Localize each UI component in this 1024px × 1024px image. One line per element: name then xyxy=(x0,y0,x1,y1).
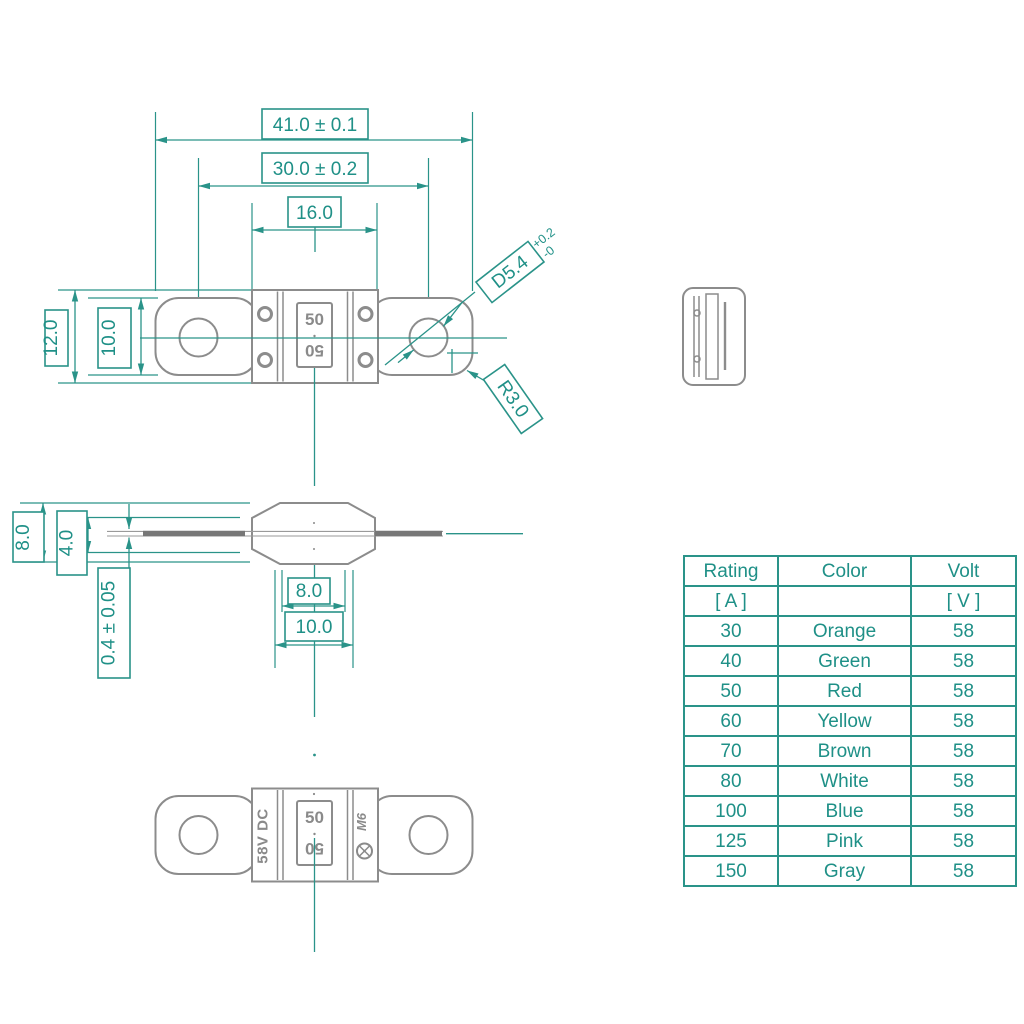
cell-volt: 58 xyxy=(911,646,1016,676)
cell-volt: 58 xyxy=(911,706,1016,736)
table-header-row: Rating Color Volt xyxy=(684,556,1016,586)
profile-dot-top xyxy=(313,522,315,524)
header-rating: Rating xyxy=(684,556,778,586)
voltage-marking: 58V DC xyxy=(255,808,272,864)
table-row: 150 Gray 58 xyxy=(684,856,1016,886)
unit-volt: [ V ] xyxy=(911,586,1016,616)
unit-rating: [ A ] xyxy=(684,586,778,616)
table-units-row: [ A ] [ V ] xyxy=(684,586,1016,616)
base-outer-width-value: 10.0 xyxy=(296,617,333,638)
cell-color: Gray xyxy=(778,856,911,886)
cell-color: Green xyxy=(778,646,911,676)
cell-rating: 40 xyxy=(684,646,778,676)
table-row: 40 Green 58 xyxy=(684,646,1016,676)
table-row: 70 Brown 58 xyxy=(684,736,1016,766)
side-height-value: 8.0 xyxy=(13,524,34,550)
top-edge-dot xyxy=(313,793,315,795)
rating-label-inverted: 50 xyxy=(305,341,324,360)
slot-height-value: 4.0 xyxy=(57,530,78,556)
center-dot xyxy=(313,335,315,337)
cell-rating: 100 xyxy=(684,796,778,826)
side-profile-body xyxy=(252,503,375,564)
cell-rating: 80 xyxy=(684,766,778,796)
cell-color: Orange xyxy=(778,616,911,646)
table-row: 100 Blue 58 xyxy=(684,796,1016,826)
header-volt: Volt xyxy=(911,556,1016,586)
rating-label: 50 xyxy=(305,310,324,329)
left-mounting-hole-bottom xyxy=(180,816,218,854)
cell-volt: 58 xyxy=(911,766,1016,796)
table-row: 30 Orange 58 xyxy=(684,616,1016,646)
end-view xyxy=(683,288,745,385)
cell-rating: 125 xyxy=(684,826,778,856)
cell-volt: 58 xyxy=(911,826,1016,856)
base-inner-width-value: 8.0 xyxy=(296,581,322,602)
cell-color: Blue xyxy=(778,796,911,826)
cell-volt: 58 xyxy=(911,856,1016,886)
cell-volt: 58 xyxy=(911,796,1016,826)
side-view: 8.0 4.0 0.4 ± 0.05 8.0 10.0 xyxy=(13,503,523,756)
table-row: 125 Pink 58 xyxy=(684,826,1016,856)
cell-rating: 70 xyxy=(684,736,778,766)
rating-label-bottom-view: 50 xyxy=(305,808,324,827)
cell-color: Pink xyxy=(778,826,911,856)
fuse-technical-drawing-page: 50 50 D5.4 +0.2 -0 R3 xyxy=(0,0,1024,1024)
brand-mark: M6 xyxy=(354,812,369,831)
rating-color-volt-table: Rating Color Volt [ A ] [ V ] 30 Orange … xyxy=(683,555,1017,887)
centerline-dot xyxy=(313,754,316,757)
cell-color: Yellow xyxy=(778,706,911,736)
center-dot-bottom xyxy=(313,833,315,835)
cell-color: Red xyxy=(778,676,911,706)
table-row: 80 White 58 xyxy=(684,766,1016,796)
cell-rating: 60 xyxy=(684,706,778,736)
cell-color: White xyxy=(778,766,911,796)
hole-spacing-value: 30.0 ± 0.2 xyxy=(273,159,357,180)
header-color: Color xyxy=(778,556,911,586)
terminal-height-value: 10.0 xyxy=(99,320,120,357)
cell-volt: 58 xyxy=(911,676,1016,706)
cell-rating: 30 xyxy=(684,616,778,646)
corner-radius-callout: R3.0 xyxy=(467,365,543,434)
bottom-view: 50 50 58V DC M6 xyxy=(156,789,473,953)
right-mounting-hole-bottom xyxy=(410,816,448,854)
cell-volt: 58 xyxy=(911,736,1016,766)
overall-width-value: 41.0 ± 0.1 xyxy=(273,115,357,136)
table-row: 60 Yellow 58 xyxy=(684,706,1016,736)
cell-volt: 58 xyxy=(911,616,1016,646)
unit-color-empty xyxy=(778,586,911,616)
body-width-value: 16.0 xyxy=(296,203,333,224)
profile-dot-bottom xyxy=(313,548,315,550)
terminal-thickness-value: 0.4 ± 0.05 xyxy=(99,581,120,665)
top-view: 50 50 D5.4 +0.2 -0 R3 xyxy=(41,109,566,486)
table-row: 50 Red 58 xyxy=(684,676,1016,706)
cell-color: Brown xyxy=(778,736,911,766)
body-height-value: 12.0 xyxy=(41,320,62,357)
cell-rating: 150 xyxy=(684,856,778,886)
cell-rating: 50 xyxy=(684,676,778,706)
